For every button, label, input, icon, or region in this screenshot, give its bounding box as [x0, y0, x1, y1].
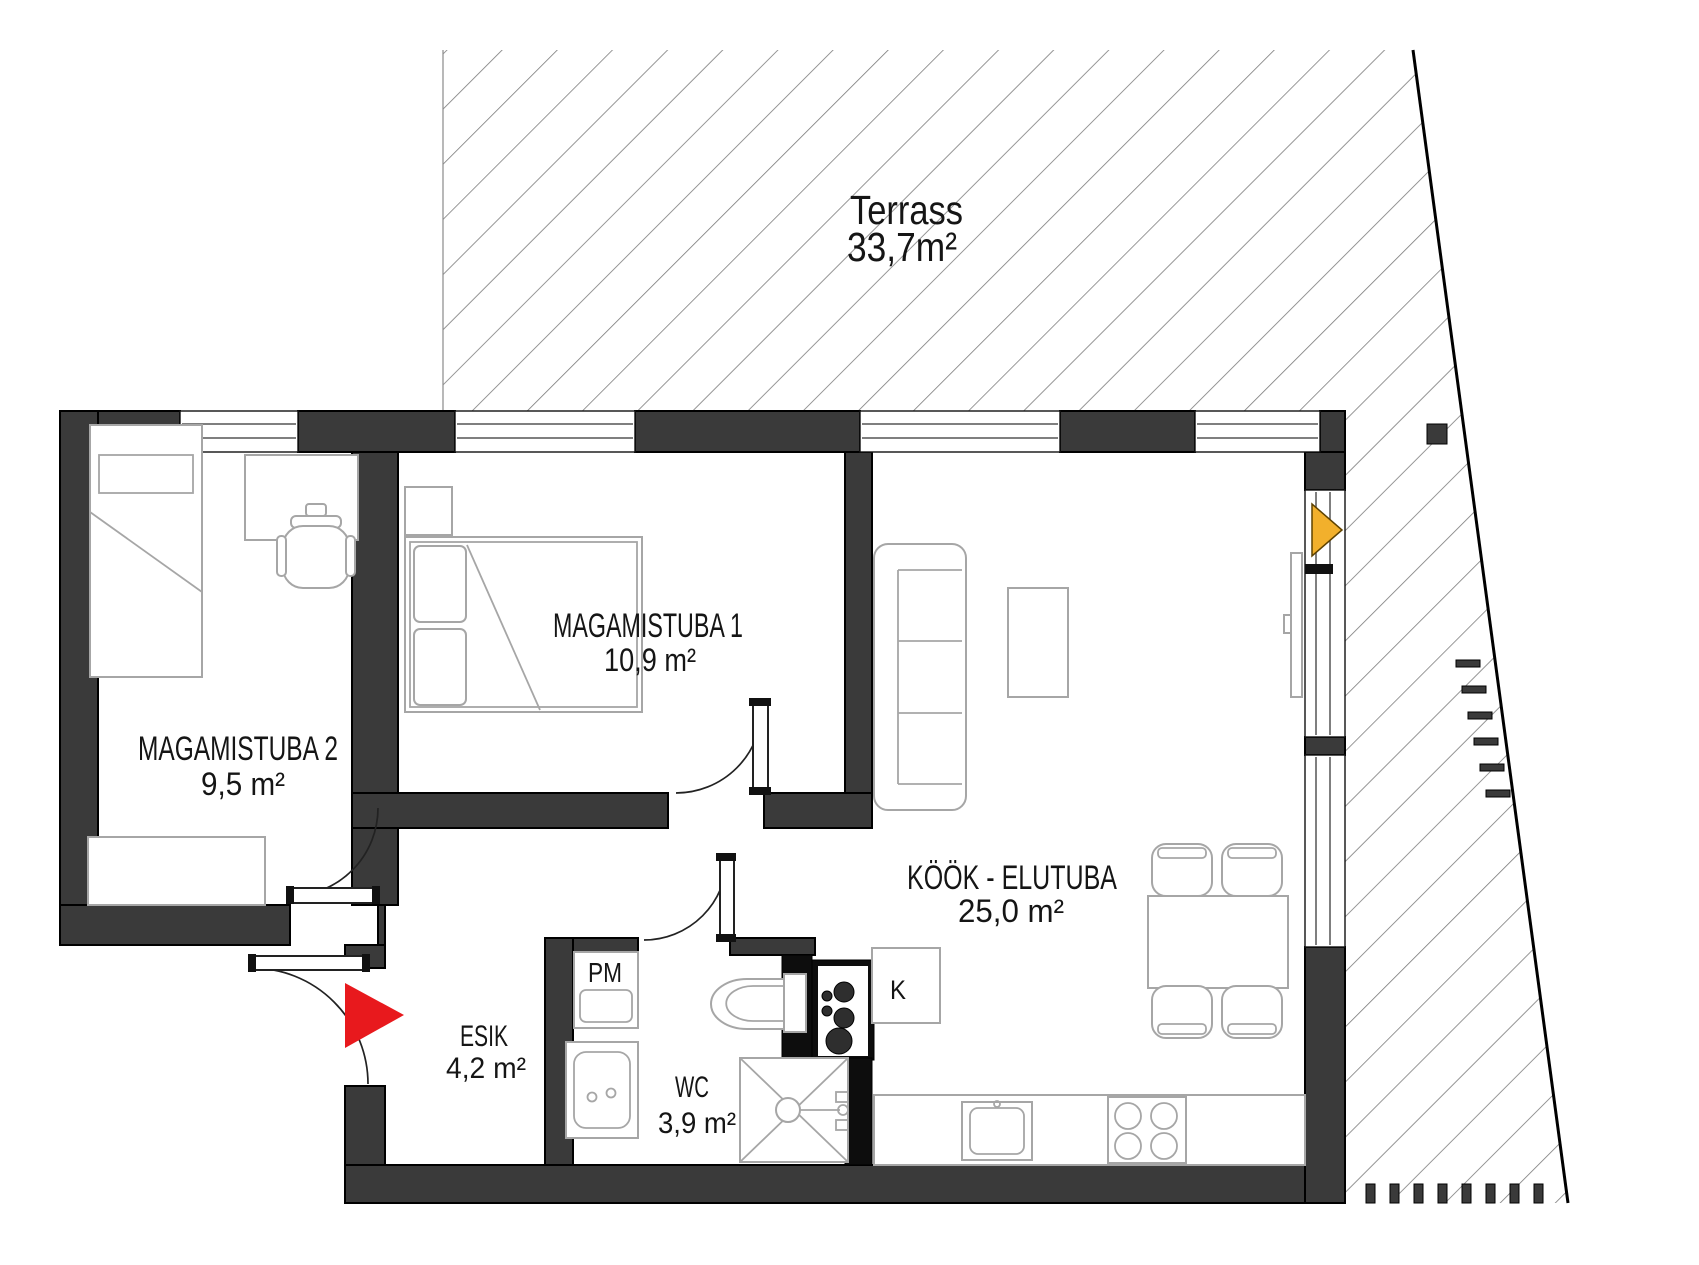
window-living-right — [1305, 755, 1345, 947]
bedroom2-area-label: 9,5 m² — [201, 766, 285, 802]
stove — [1108, 1097, 1186, 1163]
washing-machine: PM — [574, 952, 638, 1028]
terrace-area-label: 33,7m² — [847, 224, 957, 270]
kitchen-counter — [874, 1095, 1305, 1165]
kitchen-living-area-label: 25,0 m² — [958, 893, 1064, 929]
dining-chair — [1222, 844, 1282, 896]
window-living-2 — [1195, 411, 1320, 452]
coffee-table — [1008, 588, 1068, 697]
bedroom1-label: MAGAMISTUBA 1 — [553, 607, 743, 645]
kitchen-sink — [962, 1101, 1032, 1160]
floor-plan: Terrass 33,7m² — [0, 0, 1699, 1265]
terrace-sliding-door — [1305, 490, 1345, 737]
washbasin — [566, 1042, 638, 1138]
dining-chair — [1222, 986, 1282, 1038]
fridge-label: K — [890, 975, 906, 1005]
wc-label: WC — [675, 1071, 709, 1104]
fridge: K — [872, 948, 940, 1023]
kitchen-living-label: KÖÖK - ELUTUBA — [907, 859, 1117, 897]
single-bed — [90, 425, 202, 677]
sofa — [874, 544, 966, 810]
boundary-post — [1427, 424, 1447, 444]
hallway-label: ESIK — [460, 1020, 508, 1053]
bedroom1-area-label: 10,9 m² — [604, 642, 696, 678]
dining-chair — [1152, 844, 1212, 896]
washing-machine-label: PM — [588, 957, 622, 988]
wc-area-label: 3,9 m² — [658, 1107, 736, 1140]
dresser — [88, 837, 265, 905]
window-bedroom1 — [455, 411, 635, 452]
window-living-1 — [860, 411, 1060, 452]
dining-chair — [1152, 986, 1212, 1038]
hallway-area-label: 4,2 m² — [446, 1052, 526, 1085]
nightstand — [405, 487, 452, 535]
bedroom2-label: MAGAMISTUBA 2 — [138, 730, 338, 768]
dining-table — [1148, 896, 1288, 988]
shower — [740, 1058, 848, 1162]
